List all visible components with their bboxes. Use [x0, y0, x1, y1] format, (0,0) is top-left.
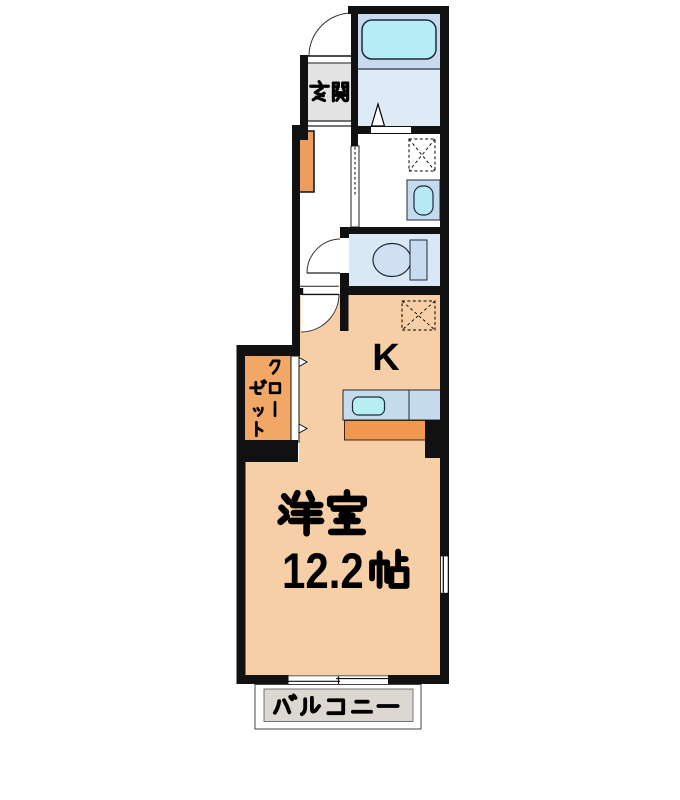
svg-text:12.2: 12.2 [282, 543, 364, 599]
svg-text:K: K [372, 337, 400, 379]
